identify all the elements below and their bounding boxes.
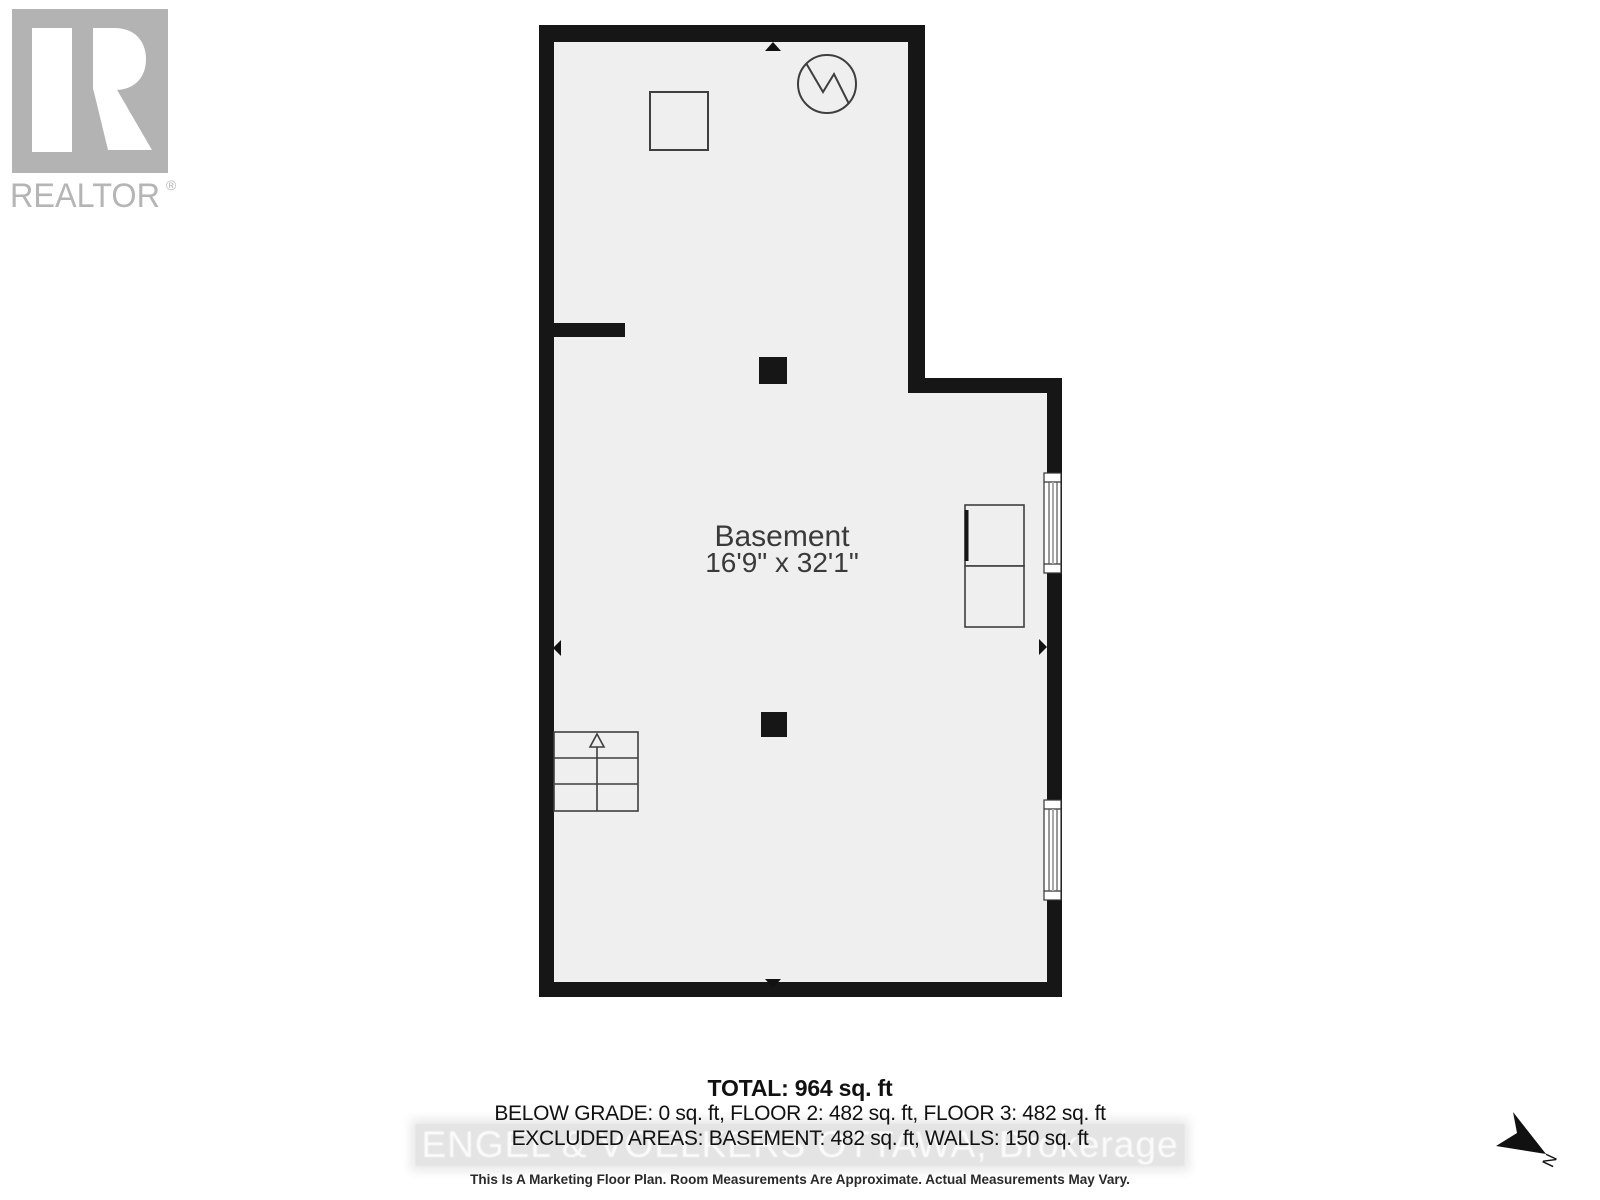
basement-floor-plan: Basement 16'9" x 32'1" N [0, 0, 1600, 1200]
partition-wall-stub [550, 323, 625, 337]
equipment-boxes [965, 505, 1024, 627]
disclaimer-text: This Is A Marketing Floor Plan. Room Mea… [0, 1172, 1600, 1187]
window-symbol-upper [1044, 473, 1061, 573]
total-area-line: TOTAL: 964 sq. ft [0, 1075, 1600, 1101]
window-symbol-lower [1044, 800, 1061, 900]
floor-plan-page: { "branding": { "logo_text": "REALTOR", … [0, 0, 1600, 1200]
grade-area-line: BELOW GRADE: 0 sq. ft, FLOOR 2: 482 sq. … [0, 1101, 1600, 1126]
excluded-area-line: EXCLUDED AREAS: BASEMENT: 482 sq. ft, WA… [0, 1126, 1600, 1151]
support-post-lower [761, 712, 787, 737]
appliance-rect-upper [965, 505, 1024, 566]
north-label: N [1538, 1151, 1560, 1170]
furnace-symbol [650, 92, 708, 150]
room-dimensions-label: 16'9" x 32'1" [705, 547, 859, 578]
area-summary: TOTAL: 964 sq. ft BELOW GRADE: 0 sq. ft,… [0, 1075, 1600, 1151]
support-post-upper [759, 357, 787, 384]
hot-water-tank-icon [798, 55, 856, 113]
appliance-rect-lower [965, 566, 1024, 627]
